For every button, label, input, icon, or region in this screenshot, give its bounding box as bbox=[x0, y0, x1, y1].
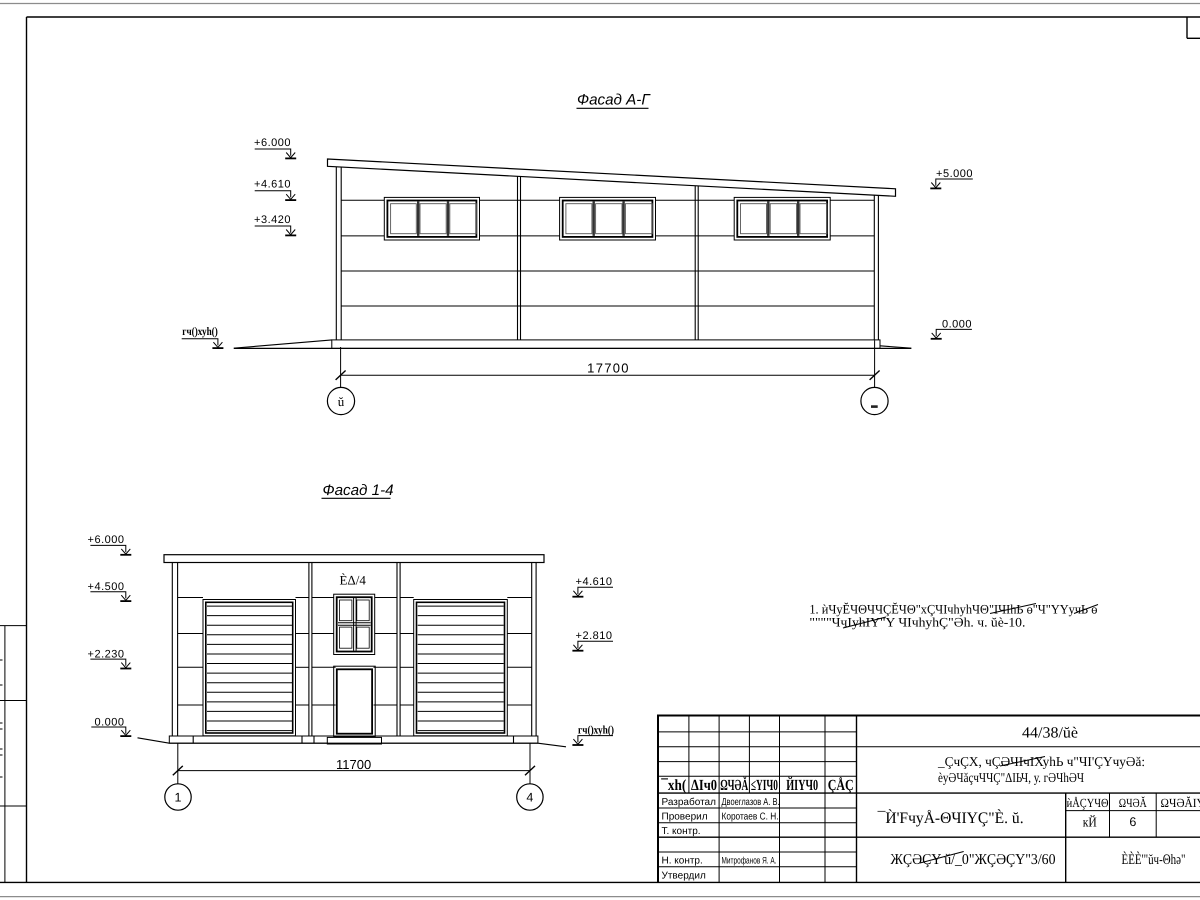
svg-text:+2.230: +2.230 bbox=[88, 649, 125, 661]
svg-text:ÇÅÇ: ÇÅÇ bbox=[828, 777, 854, 794]
svg-text:Фасад А-Г: Фасад А-Г bbox=[577, 92, 651, 109]
svg-text:Фасад 1-4: Фасад 1-4 bbox=[323, 482, 394, 499]
svg-text:Двоеглазов А. В.: Двоеглазов А. В. bbox=[722, 797, 780, 808]
svg-text:ΔIч0: ΔIч0 bbox=[691, 777, 717, 794]
svg-text:ЙIYЧ0: ЙIYЧ0 bbox=[786, 776, 818, 794]
svg-text:0.000: 0.000 bbox=[942, 319, 972, 331]
svg-text:17700: 17700 bbox=[587, 360, 630, 375]
svg-text:ΩЧƏĂ: ΩЧƏĂ bbox=[720, 776, 748, 794]
svg-text:+3.420: +3.420 bbox=[254, 214, 291, 226]
svg-text:""""ЧчIуhIY"Y ЧIчhуhÇ"Əh. ч. ŭ: """"ЧчIуhIY"Y ЧIчhуhÇ"Əh. ч. ŭè-10. bbox=[809, 615, 1025, 630]
svg-text:¯хh(: ¯хh( bbox=[660, 777, 686, 794]
svg-text:0.000: 0.000 bbox=[94, 717, 124, 729]
svg-text:6: 6 bbox=[1129, 815, 1136, 829]
svg-text:Т. контр.: Т. контр. bbox=[662, 826, 701, 837]
svg-text:Разработал: Разработал bbox=[662, 797, 717, 808]
svg-text:+4.500: +4.500 bbox=[88, 581, 125, 593]
svg-text:ЖÇƏÇY ŭ/_0"ЖÇƏÇY"3/60: ЖÇƏÇY ŭ/_0"ЖÇƏÇY"3/60 bbox=[891, 852, 1056, 868]
svg-text:+4.610: +4.610 bbox=[576, 576, 613, 588]
svg-text:ÈΔ/4: ÈΔ/4 bbox=[339, 573, 366, 588]
svg-text:¯Ѝ'FчуÅ-ΘЧIYÇ"È. ŭ.: ¯Ѝ'FчуÅ-ΘЧIYÇ"È. ŭ. bbox=[877, 809, 1024, 827]
svg-text:ŭ: ŭ bbox=[338, 394, 345, 409]
svg-text:≤YIЧ0: ≤YIЧ0 bbox=[751, 777, 778, 794]
svg-text:èуƏЧăçчЧЧÇ"ΔIЬЧ, у. гƏЧhƏЧ: èуƏЧăçчЧЧÇ"ΔIЬЧ, у. гƏЧhƏЧ bbox=[938, 770, 1084, 785]
svg-text:ΩЧƏĂIYI: ΩЧƏĂIYI bbox=[1161, 796, 1200, 810]
svg-text:1: 1 bbox=[175, 791, 182, 805]
svg-text:4: 4 bbox=[526, 791, 533, 805]
svg-text:44/38/ŭè: 44/38/ŭè bbox=[1022, 724, 1078, 741]
svg-text:Утвердил: Утвердил bbox=[662, 870, 706, 881]
svg-text:гч()хуh(): гч()хуh() bbox=[182, 326, 218, 338]
svg-text:ΩЧƏĂ: ΩЧƏĂ bbox=[1119, 796, 1147, 810]
svg-text:+6.000: +6.000 bbox=[88, 534, 125, 546]
svg-text:ѝÅÇYЧΘ: ѝÅÇYЧΘ bbox=[1067, 796, 1109, 810]
svg-text:гч()хуh(): гч()хуh() bbox=[578, 724, 614, 736]
svg-text:+6.000: +6.000 bbox=[254, 137, 291, 149]
svg-text:Н. контр.: Н. контр. bbox=[662, 856, 703, 867]
svg-text:Коротаев С. Н.: Коротаев С. Н. bbox=[722, 812, 779, 823]
svg-text:+2.810: +2.810 bbox=[576, 630, 613, 642]
svg-text:_ÇчÇХ, чÇƏЧIчIХуhЬ ч"ЧI'ÇYчуƏă: _ÇчÇХ, чÇƏЧIчIХуhЬ ч"ЧI'ÇYчуƏă: bbox=[937, 754, 1145, 769]
svg-text:Митрофанов Я. А.: Митрофанов Я. А. bbox=[722, 856, 777, 867]
svg-text:11700: 11700 bbox=[336, 757, 371, 772]
svg-text:+4.610: +4.610 bbox=[254, 178, 291, 190]
svg-text:Проверил: Проверил bbox=[662, 812, 708, 823]
svg-text:+5.000: +5.000 bbox=[936, 168, 973, 180]
svg-text:ÈÈÈ'"ŭч-Θhə": ÈÈÈ'"ŭч-Θhə" bbox=[1122, 851, 1186, 868]
svg-text:кЙ: кЙ bbox=[1083, 815, 1097, 830]
